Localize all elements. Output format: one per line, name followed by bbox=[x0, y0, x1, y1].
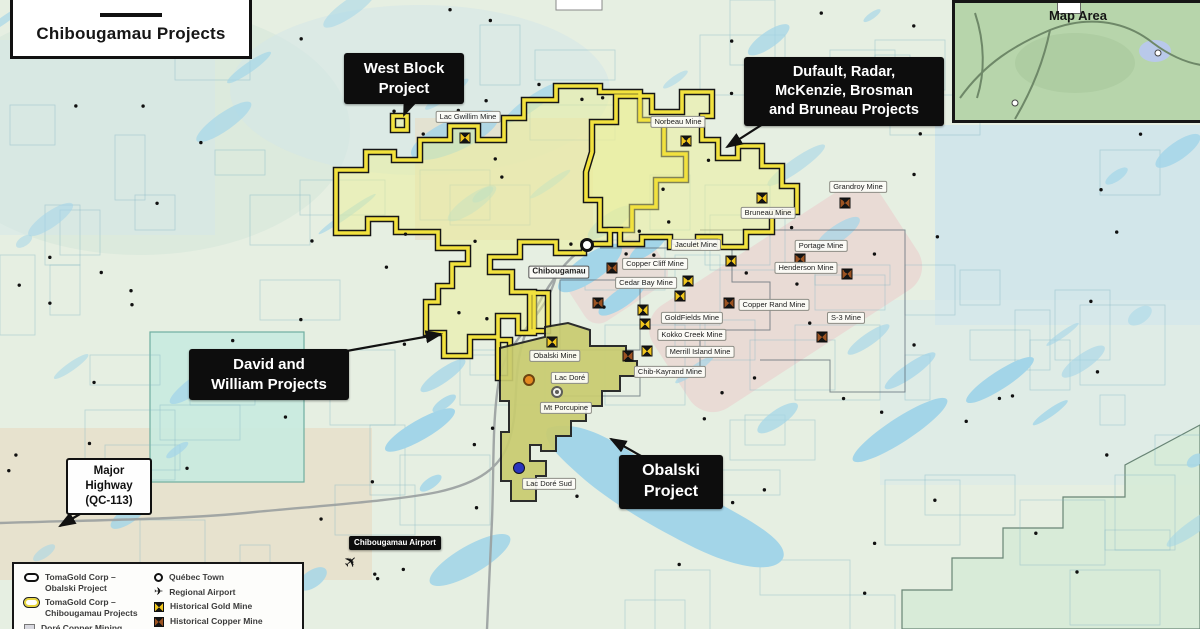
historical-copper-mine-icon bbox=[724, 298, 735, 309]
legend-item: Québec Town bbox=[154, 572, 300, 583]
mine-label: Chib-Kayrand Mine bbox=[634, 366, 706, 378]
callout-obalski-project: Obalski Project bbox=[619, 455, 723, 509]
mine-label: Grandroy Mine bbox=[829, 181, 887, 193]
map-screenshot: West Block Project Dufault, Radar, McKen… bbox=[0, 0, 1200, 629]
mine-label: Kokko Creek Mine bbox=[657, 329, 726, 341]
copper-icon bbox=[154, 617, 164, 627]
inset-map-label: Map Area bbox=[955, 8, 1200, 23]
historical-copper-mine-icon bbox=[817, 332, 828, 343]
historical-gold-mine-icon bbox=[726, 256, 737, 267]
mine-label: S-3 Mine bbox=[827, 312, 865, 324]
deposit-marker-orange bbox=[523, 374, 535, 386]
deposit-marker-blue bbox=[513, 462, 525, 474]
callout-david-william-projects: David and William Projects bbox=[189, 349, 349, 400]
feature-label: Lac Doré bbox=[551, 372, 589, 384]
callout-west-block-project: West Block Project bbox=[344, 53, 464, 104]
legend-item-label: Historical Gold Mine bbox=[170, 601, 252, 612]
historical-copper-mine-icon bbox=[607, 263, 618, 274]
title-logo-line bbox=[100, 13, 162, 17]
legend-item-label: Historical Copper Mine bbox=[170, 616, 263, 627]
gold-icon bbox=[154, 602, 164, 612]
historical-gold-mine-icon bbox=[547, 337, 558, 348]
mine-label: Portage Mine bbox=[795, 240, 848, 252]
legend-right-column: Québec Town✈Regional AirportHistorical G… bbox=[154, 572, 300, 629]
historical-gold-mine-icon bbox=[681, 136, 692, 147]
deposit-marker-ring bbox=[551, 386, 563, 398]
airport-icon: ✈ bbox=[154, 588, 163, 597]
legend-item-label: TomaGold Corp – Obalski Project bbox=[45, 572, 116, 593]
legend-item-label: TomaGold Corp – Chibougamau Projects bbox=[45, 597, 138, 618]
label-chibougamau-town: Chibougamau bbox=[528, 266, 589, 279]
legend-item: TomaGold Corp – Chibougamau Projects bbox=[24, 597, 152, 618]
historical-gold-mine-icon bbox=[757, 193, 768, 204]
historical-gold-mine-icon bbox=[675, 291, 686, 302]
historical-gold-mine-icon bbox=[640, 319, 651, 330]
inset-map: Map Area bbox=[952, 0, 1200, 123]
label-chibougamau-airport: Chibougamau Airport bbox=[349, 536, 441, 550]
historical-copper-mine-icon bbox=[593, 298, 604, 309]
mine-label: Copper Cliff Mine bbox=[622, 258, 688, 270]
feature-label: Mt Porcupine bbox=[540, 402, 592, 414]
mine-label: Merrill Island Mine bbox=[666, 346, 735, 358]
callout-dufault-projects: Dufault, Radar, McKenzie, Brosman and Br… bbox=[744, 57, 944, 126]
mine-label: GoldFields Mine bbox=[661, 312, 723, 324]
mine-label: Lac Gwillim Mine bbox=[436, 111, 501, 123]
legend-item: Historical Gold Mine bbox=[154, 601, 300, 612]
mine-label: Obalski Mine bbox=[529, 350, 580, 362]
historical-copper-mine-icon bbox=[842, 269, 853, 280]
mine-label: Norbeau Mine bbox=[650, 116, 705, 128]
legend-item-label: Doré Copper Mining bbox=[41, 623, 122, 629]
outline-black-icon bbox=[24, 573, 39, 582]
legend-item-label: Québec Town bbox=[169, 572, 224, 583]
legend-item: Doré Copper Mining bbox=[24, 623, 152, 629]
title-box: Chibougamau Projects bbox=[10, 0, 252, 59]
historical-gold-mine-icon bbox=[642, 346, 653, 357]
mine-label: Bruneau Mine bbox=[741, 207, 796, 219]
legend-item: Historical Copper Mine bbox=[154, 616, 300, 627]
historical-copper-mine-icon bbox=[840, 198, 851, 209]
legend-item-label: Regional Airport bbox=[169, 587, 235, 598]
square-grey-icon bbox=[24, 624, 35, 629]
mine-label: Henderson Mine bbox=[774, 262, 837, 274]
historical-copper-mine-icon bbox=[623, 351, 634, 362]
historical-gold-mine-icon bbox=[638, 305, 649, 316]
historical-gold-mine-icon bbox=[683, 276, 694, 287]
airport-icon: ✈ bbox=[339, 550, 362, 574]
mine-label: Cedar Bay Mine bbox=[615, 277, 677, 289]
legend: TomaGold Corp – Obalski ProjectTomaGold … bbox=[12, 562, 304, 629]
feature-label: Lac Doré Sud bbox=[522, 478, 576, 490]
legend-left-column: TomaGold Corp – Obalski ProjectTomaGold … bbox=[24, 572, 152, 629]
callout-major-highway: Major Highway (QC-113) bbox=[66, 458, 152, 515]
outline-yellow-icon bbox=[24, 598, 39, 607]
page-title: Chibougamau Projects bbox=[13, 24, 249, 44]
historical-gold-mine-icon bbox=[460, 133, 471, 144]
town-icon bbox=[154, 573, 163, 582]
legend-item: ✈Regional Airport bbox=[154, 587, 300, 598]
town-marker bbox=[580, 238, 594, 252]
mine-label: Copper Rand Mine bbox=[739, 299, 810, 311]
mine-label: Jaculet Mine bbox=[671, 239, 721, 251]
legend-item: TomaGold Corp – Obalski Project bbox=[24, 572, 152, 593]
